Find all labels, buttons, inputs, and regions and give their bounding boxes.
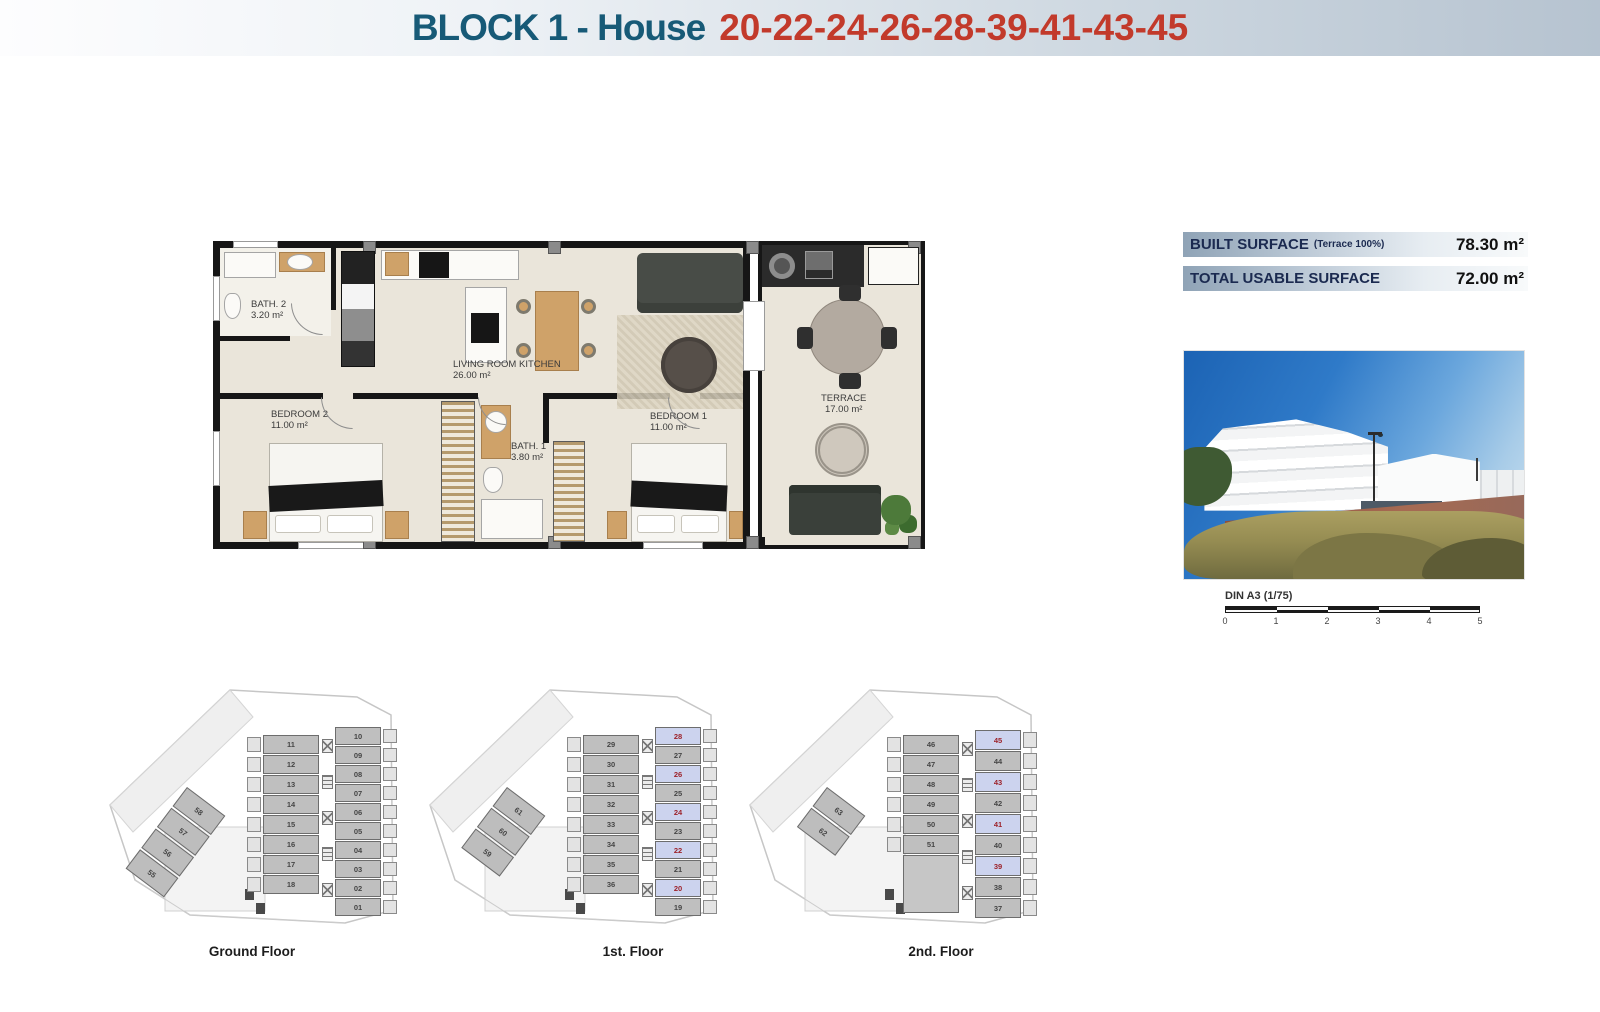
balcony-cell xyxy=(1023,753,1037,769)
balcony-cell xyxy=(383,862,397,876)
unit-42: 42 xyxy=(975,793,1021,813)
elevator-icon xyxy=(322,883,333,897)
wardrobe xyxy=(441,401,475,542)
balcony-cell xyxy=(383,786,397,800)
wall-segment xyxy=(353,393,478,399)
stairs-icon xyxy=(322,775,333,789)
siteplan-ground-floor: 1112131415161718100908070605040302015857… xyxy=(95,675,405,940)
plant xyxy=(881,495,911,525)
balcony-cell xyxy=(247,737,261,752)
window xyxy=(213,276,220,321)
unit-18: 18 xyxy=(263,875,319,894)
unit-12: 12 xyxy=(263,755,319,774)
shower xyxy=(224,252,276,278)
unit-01: 01 xyxy=(335,898,381,916)
street-lamp-head xyxy=(1368,432,1382,435)
balcony-cell xyxy=(887,737,901,752)
cutting-board xyxy=(385,252,409,276)
unit-26: 26 xyxy=(655,765,701,783)
balcony-cell xyxy=(703,862,717,876)
scale-tick: 2 xyxy=(1322,616,1332,626)
unit-35: 35 xyxy=(583,855,639,874)
ac-unit-icon xyxy=(805,251,833,279)
built-surface-value: 78.30 m² xyxy=(1456,235,1528,255)
window xyxy=(233,241,278,248)
unit-11: 11 xyxy=(263,735,319,754)
unit-14: 14 xyxy=(263,795,319,814)
unit-47: 47 xyxy=(903,755,959,774)
balcony-cell xyxy=(567,797,581,812)
scale-bar xyxy=(1225,606,1480,613)
island-sink xyxy=(471,313,499,343)
storage-box xyxy=(868,247,919,285)
sliding-door xyxy=(743,301,765,371)
balcony-cell xyxy=(703,786,717,800)
window xyxy=(643,542,703,549)
unit-44: 44 xyxy=(975,751,1021,771)
balcony-cell xyxy=(247,777,261,792)
scale-bar-row xyxy=(1226,610,1479,613)
balcony-cell xyxy=(247,837,261,852)
elevator-icon xyxy=(962,742,973,756)
balcony-cell xyxy=(383,767,397,781)
balcony-cell xyxy=(1023,774,1037,790)
balcony-cell xyxy=(383,900,397,914)
unit-04: 04 xyxy=(335,841,381,859)
elevator-icon xyxy=(962,886,973,900)
unit-25: 25 xyxy=(655,784,701,802)
balcony-cell xyxy=(703,805,717,819)
unit-30: 30 xyxy=(583,755,639,774)
balcony-cell xyxy=(703,767,717,781)
balcony-cell xyxy=(247,757,261,772)
scale-tick: 1 xyxy=(1271,616,1281,626)
siteplan-1st-floor: 2930313233343536282726252423222120196160… xyxy=(415,675,725,940)
chair xyxy=(797,327,813,349)
balcony-cell xyxy=(567,757,581,772)
scale-tick: 3 xyxy=(1373,616,1383,626)
unit-40: 40 xyxy=(975,835,1021,855)
chair xyxy=(516,343,531,358)
unit-15: 15 xyxy=(263,815,319,834)
pillar xyxy=(746,536,759,549)
built-surface-label: BUILT SURFACE xyxy=(1183,236,1309,253)
pillar xyxy=(746,241,759,254)
unit-13: 13 xyxy=(263,775,319,794)
balcony-cell xyxy=(567,817,581,832)
page-title: BLOCK 1 - House xyxy=(412,7,705,49)
pillar xyxy=(908,536,921,549)
wall-segment xyxy=(543,399,549,443)
elevator-icon xyxy=(962,814,973,828)
balcony-cell xyxy=(887,757,901,772)
window xyxy=(213,431,220,486)
unit-20: 20 xyxy=(655,879,701,897)
balcony-cell xyxy=(383,824,397,838)
elevator-icon xyxy=(642,811,653,825)
cooktop xyxy=(419,252,449,278)
room-label-bath1: BATH. 1 3.80 m² xyxy=(511,441,546,463)
balcony-cell xyxy=(383,843,397,857)
unit-31: 31 xyxy=(583,775,639,794)
chair xyxy=(581,343,596,358)
nightstand xyxy=(243,511,267,539)
chair xyxy=(516,299,531,314)
unit-22: 22 xyxy=(655,841,701,859)
balcony-cell xyxy=(383,805,397,819)
balcony-cell xyxy=(567,877,581,892)
unit-36: 36 xyxy=(583,875,639,894)
street-lamp xyxy=(1373,433,1375,501)
chair xyxy=(581,299,596,314)
chair xyxy=(839,285,861,301)
balcony-cell xyxy=(567,837,581,852)
unit-33: 33 xyxy=(583,815,639,834)
floor-label-ground: Ground Floor xyxy=(172,944,332,959)
pillow xyxy=(327,515,373,533)
unit-09: 09 xyxy=(335,746,381,764)
unit-06: 06 xyxy=(335,803,381,821)
house-numbers: 20-22-24-26-28-39-41-43-45 xyxy=(719,7,1188,49)
balcony-cell xyxy=(703,729,717,743)
nightstand xyxy=(607,511,627,539)
unit-37: 37 xyxy=(975,898,1021,918)
unit-28: 28 xyxy=(655,727,701,745)
wardrobe xyxy=(553,441,585,542)
scale-tick: 5 xyxy=(1475,616,1485,626)
elevator-icon xyxy=(322,811,333,825)
chair xyxy=(881,327,897,349)
unit-19: 19 xyxy=(655,898,701,916)
apartment-floorplan: BATH. 2 3.20 m² LIVING ROOM KITCHEN 26.0… xyxy=(213,241,925,549)
balcony-cell xyxy=(567,777,581,792)
balcony-cell xyxy=(1023,732,1037,748)
page: BLOCK 1 - House 20-22-24-26-28-39-41-43-… xyxy=(0,0,1600,1012)
balcony-cell xyxy=(1023,900,1037,916)
bathtub xyxy=(481,499,543,539)
terrace-sofa xyxy=(789,485,881,535)
balcony-cell xyxy=(887,777,901,792)
unit-07: 07 xyxy=(335,784,381,802)
balcony-cell xyxy=(1023,795,1037,811)
scale-label: DIN A3 (1/75) xyxy=(1225,590,1292,602)
bed-throw xyxy=(630,481,727,512)
wall-segment xyxy=(220,336,290,341)
balcony-cell xyxy=(703,900,717,914)
usable-surface-bar: TOTAL USABLE SURFACE 72.00 m² xyxy=(1183,266,1528,291)
pillow xyxy=(681,515,719,533)
stairs-icon xyxy=(962,850,973,864)
unit-27: 27 xyxy=(655,746,701,764)
balcony-cell xyxy=(383,881,397,895)
sofa xyxy=(637,253,743,313)
window xyxy=(298,542,368,549)
wall-segment xyxy=(220,393,323,399)
pillow xyxy=(637,515,675,533)
balcony-cell xyxy=(247,797,261,812)
unit-23: 23 xyxy=(655,822,701,840)
unit-21: 21 xyxy=(655,860,701,878)
unit-41: 41 xyxy=(975,814,1021,834)
stairs-icon xyxy=(642,775,653,789)
floor-label-1st: 1st. Floor xyxy=(553,944,713,959)
balcony-cell xyxy=(383,729,397,743)
stairs-icon xyxy=(322,847,333,861)
unit-05: 05 xyxy=(335,822,381,840)
elevator-icon xyxy=(642,883,653,897)
unit-17: 17 xyxy=(263,855,319,874)
unit-39: 39 xyxy=(975,856,1021,876)
pillow xyxy=(275,515,321,533)
sink xyxy=(287,254,313,270)
unit-43: 43 xyxy=(975,772,1021,792)
room-label-living: LIVING ROOM KITCHEN 26.00 m² xyxy=(453,359,561,381)
unit-38: 38 xyxy=(975,877,1021,897)
unit-45: 45 xyxy=(975,730,1021,750)
nightstand xyxy=(729,511,743,539)
ac-fan-icon xyxy=(769,253,795,279)
balcony-cell xyxy=(247,817,261,832)
unit-34: 34 xyxy=(583,835,639,854)
balcony-cell xyxy=(567,737,581,752)
room-label-bedroom2: BEDROOM 2 11.00 m² xyxy=(271,409,328,431)
unit-48: 48 xyxy=(903,775,959,794)
floor-label-2nd: 2nd. Floor xyxy=(861,944,1021,959)
unit-50: 50 xyxy=(903,815,959,834)
room-label-terrace: TERRACE 17.00 m² xyxy=(821,393,866,415)
street-lamp xyxy=(1476,458,1478,481)
usable-surface-value: 72.00 m² xyxy=(1456,269,1528,289)
unit-08: 08 xyxy=(335,765,381,783)
unit-46: 46 xyxy=(903,735,959,754)
unit-10: 10 xyxy=(335,727,381,745)
terrace-rug xyxy=(815,423,869,477)
wardrobe-closet xyxy=(341,251,375,367)
balcony-cell xyxy=(567,857,581,872)
balcony-cell xyxy=(703,881,717,895)
unit-16: 16 xyxy=(263,835,319,854)
built-surface-note: (Terrace 100%) xyxy=(1314,239,1384,250)
toilet xyxy=(483,467,503,493)
balcony-cell xyxy=(1023,858,1037,874)
scale-tick: 0 xyxy=(1220,616,1230,626)
balcony-cell xyxy=(703,843,717,857)
balcony-cell xyxy=(383,748,397,762)
balcony-cell xyxy=(887,797,901,812)
stairs-icon xyxy=(642,847,653,861)
building-mass xyxy=(903,855,959,913)
balcony-cell xyxy=(1023,816,1037,832)
terrace-table xyxy=(809,299,885,375)
balcony-cell xyxy=(247,857,261,872)
toilet xyxy=(224,293,241,319)
unit-24: 24 xyxy=(655,803,701,821)
balcony-cell xyxy=(1023,837,1037,853)
balcony-cell xyxy=(247,877,261,892)
header-bar: BLOCK 1 - House 20-22-24-26-28-39-41-43-… xyxy=(0,0,1600,60)
balcony-cell xyxy=(703,748,717,762)
balcony-cell xyxy=(887,837,901,852)
built-surface-bar: BUILT SURFACE (Terrace 100%) 78.30 m² xyxy=(1183,232,1528,257)
unit-29: 29 xyxy=(583,735,639,754)
unit-03: 03 xyxy=(335,860,381,878)
unit-32: 32 xyxy=(583,795,639,814)
unit-49: 49 xyxy=(903,795,959,814)
scale-tick: 4 xyxy=(1424,616,1434,626)
room-label-bath2: BATH. 2 3.20 m² xyxy=(251,299,286,321)
unit-02: 02 xyxy=(335,879,381,897)
stairs-icon xyxy=(962,778,973,792)
unit-51: 51 xyxy=(903,835,959,854)
usable-surface-label: TOTAL USABLE SURFACE xyxy=(1183,270,1380,287)
chair xyxy=(839,373,861,389)
ottoman xyxy=(661,337,717,393)
balcony-cell xyxy=(703,824,717,838)
balcony-cell xyxy=(887,817,901,832)
elevator-icon xyxy=(642,739,653,753)
siteplan-2nd-floor: 4647484950514544434241403938376362 xyxy=(735,675,1045,940)
nightstand xyxy=(385,511,409,539)
elevator-icon xyxy=(322,739,333,753)
pillar xyxy=(548,241,561,254)
balcony-cell xyxy=(1023,879,1037,895)
wall-segment xyxy=(331,248,336,310)
building-photo xyxy=(1183,350,1525,580)
